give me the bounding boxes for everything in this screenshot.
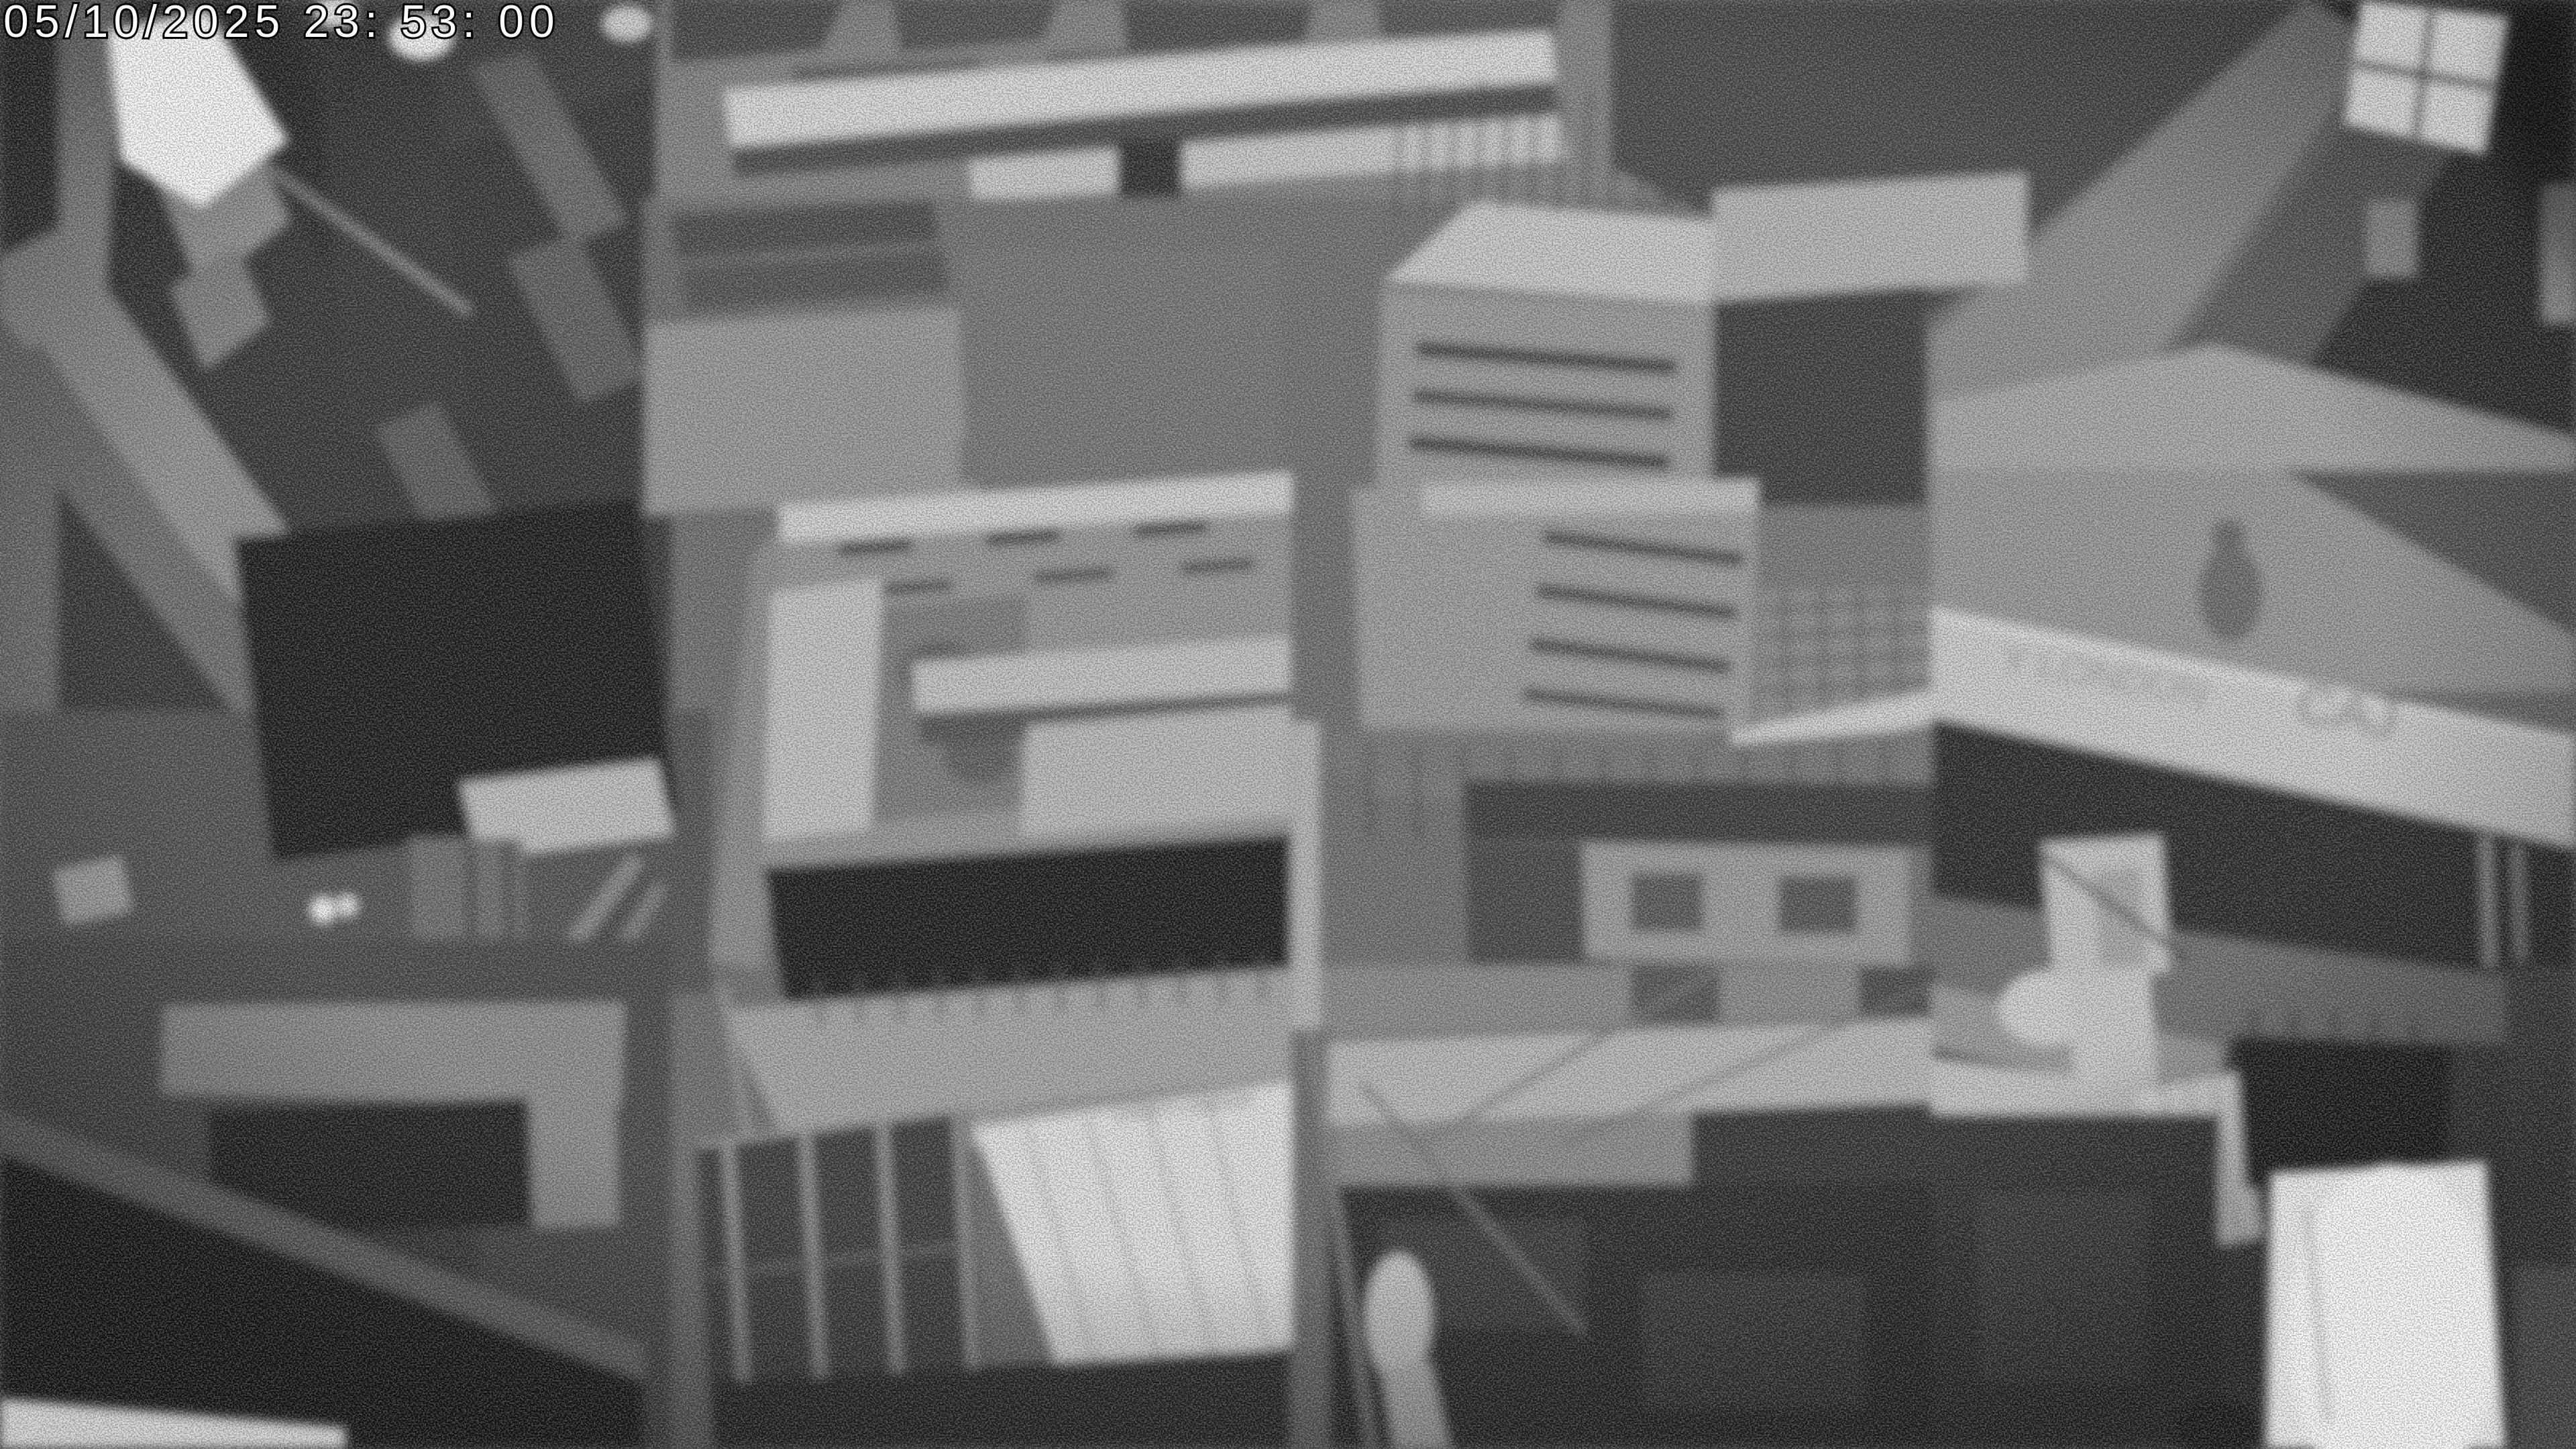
svg-text:05/10/2025 23: 53: 00: 05/10/2025 23: 53: 00 — [3, 0, 560, 47]
